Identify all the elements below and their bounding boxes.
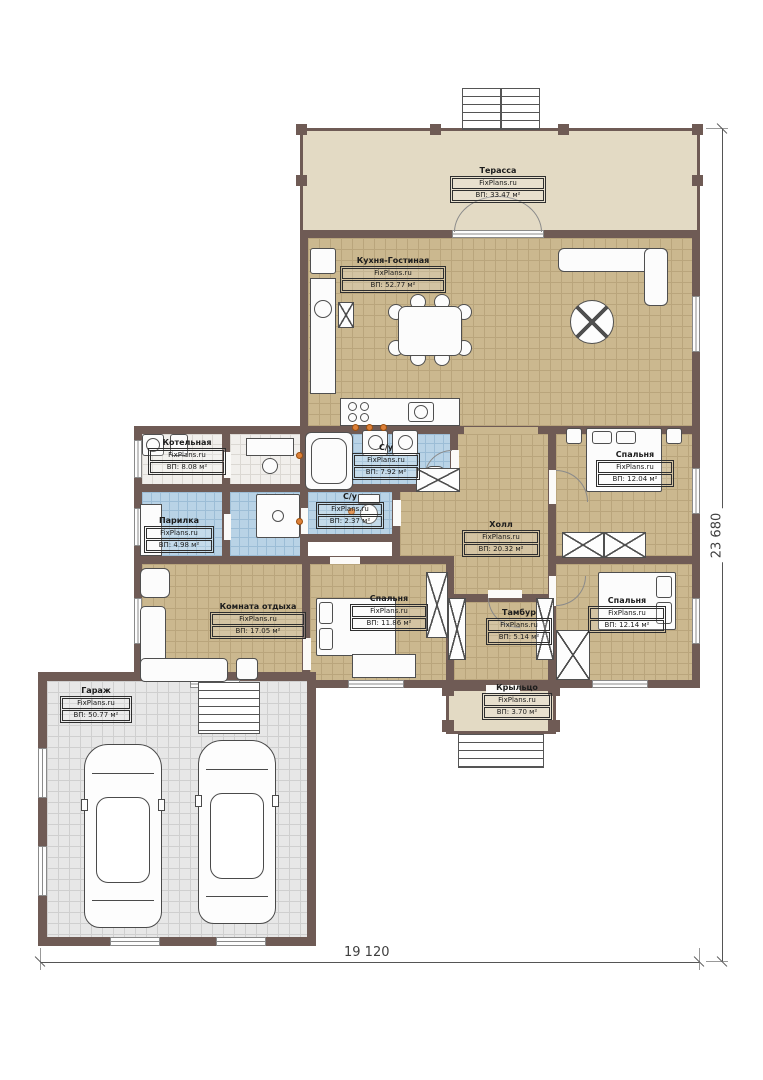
room-area: ВП: 7.92 м²	[354, 467, 418, 478]
room-name: С/у	[316, 492, 384, 502]
porch-pillar	[548, 720, 560, 732]
desk-icon	[246, 438, 294, 456]
terrace-pillar	[430, 124, 441, 135]
car-icon	[84, 744, 162, 928]
door-opening	[303, 638, 311, 670]
label-boiler: Котельная FixPlans.ru ВП: 8.08 м²	[148, 438, 226, 475]
car-roof	[96, 797, 150, 883]
shower-drain-icon	[272, 510, 284, 522]
room-name: Холл	[462, 520, 540, 530]
room-name: Спальня	[588, 596, 666, 606]
car-roof	[210, 793, 264, 879]
terrace-pillar	[692, 175, 703, 186]
terrace-pillar	[296, 124, 307, 135]
sofa-icon	[644, 248, 668, 306]
watermark: FixPlans.ru	[342, 268, 444, 279]
terrace-pillar	[558, 124, 569, 135]
dimension-ext	[40, 948, 41, 970]
dimension-ext	[699, 948, 700, 970]
garage-window	[38, 846, 47, 896]
wardrobe-icon	[604, 532, 646, 558]
room-area: ВП: 17.05 м²	[212, 626, 304, 637]
car-hood-line	[92, 773, 154, 774]
door-opening	[224, 514, 231, 540]
label-terrace: Терасса FixPlans.ru ВП: 33.47 м²	[450, 166, 546, 203]
room-name: Спальня	[596, 450, 674, 460]
dimension-height-label: 23 680	[709, 509, 724, 563]
room-area: ВП: 33.47 м²	[452, 190, 544, 201]
fixture-dot	[380, 424, 387, 431]
label-garage: Гараж FixPlans.ru ВП: 50.77 м²	[60, 686, 132, 723]
wardrobe-icon	[448, 598, 466, 660]
garage-window	[110, 937, 160, 946]
room-area: ВП: 52.77 м²	[342, 280, 444, 291]
car-trunk-line	[206, 896, 268, 897]
room-name: Тамбур	[486, 608, 552, 618]
round-table-icon	[570, 300, 614, 344]
stairs-rail	[500, 88, 502, 130]
room-area: ВП: 20.32 м²	[464, 544, 538, 555]
watermark: FixPlans.ru	[452, 178, 544, 189]
terrace-pillar	[692, 124, 703, 135]
room-name: С/у	[352, 443, 420, 453]
nightstand-icon	[566, 428, 582, 444]
room-area: ВП: 4.98 м²	[146, 540, 212, 551]
side-table-icon	[236, 658, 258, 680]
watermark: FixPlans.ru	[354, 455, 418, 466]
watermark: FixPlans.ru	[62, 698, 130, 709]
window	[134, 440, 142, 478]
porch-stairs-icon	[458, 734, 544, 768]
desk-chair-icon	[262, 458, 278, 474]
label-vestibule: Тамбур FixPlans.ru ВП: 5.14 м²	[486, 608, 552, 645]
fixture-dot	[352, 424, 359, 431]
room-area: ВП: 12.14 м²	[590, 620, 664, 631]
wardrobe-icon	[426, 572, 448, 638]
watermark: FixPlans.ru	[590, 608, 664, 619]
bathtub-inner	[311, 438, 347, 484]
kitchen-counter-icon	[310, 278, 336, 394]
room-name: Гараж	[60, 686, 132, 696]
label-lounge: Комната отдыха FixPlans.ru ВП: 17.05 м²	[210, 602, 306, 639]
room-area: ВП: 2.37 м²	[318, 516, 382, 527]
room-name: Терасса	[450, 166, 546, 176]
sofa-icon	[140, 658, 228, 682]
room-name: Парилка	[144, 516, 214, 526]
fixture-dot	[296, 452, 303, 459]
car-mirror	[81, 799, 88, 811]
room-name: Котельная	[148, 438, 226, 448]
room-area: ВП: 11.86 м²	[352, 618, 426, 629]
stove-burner-icon	[348, 413, 357, 422]
watermark: FixPlans.ru	[484, 695, 550, 706]
stove-burner-icon	[348, 402, 357, 411]
door-opening	[330, 557, 360, 564]
pillow-icon	[616, 431, 636, 444]
watermark: FixPlans.ru	[146, 528, 212, 539]
label-bathroom-2: С/у FixPlans.ru ВП: 2.37 м²	[316, 492, 384, 529]
desk-icon	[352, 654, 416, 678]
fixture-dot	[296, 518, 303, 525]
garage-window	[38, 748, 47, 798]
garage-stairs-icon	[198, 682, 260, 734]
window	[348, 680, 404, 688]
window	[692, 598, 700, 644]
car-trunk-line	[92, 900, 154, 901]
room-area: ВП: 50.77 м²	[62, 710, 130, 721]
stove-burner-icon	[360, 413, 369, 422]
window	[692, 296, 700, 352]
room-area: ВП: 5.14 м²	[488, 632, 550, 643]
nightstand-icon	[666, 428, 682, 444]
sink-icon	[314, 300, 332, 318]
chimney-flue-icon	[338, 302, 354, 328]
dimension-width-label: 19 120	[340, 945, 394, 960]
car-hood-line	[206, 769, 268, 770]
watermark: FixPlans.ru	[352, 606, 426, 617]
window	[692, 468, 700, 514]
watermark: FixPlans.ru	[150, 450, 224, 461]
armchair-icon	[140, 568, 170, 598]
watermark: FixPlans.ru	[464, 532, 538, 543]
dining-table-icon	[398, 306, 462, 356]
room-name: Спальня	[350, 594, 428, 604]
car-mirror	[272, 795, 279, 807]
dimension-ext	[706, 128, 728, 129]
floor-plan: Терасса FixPlans.ru ВП: 33.47 м² Кухня-Г…	[0, 0, 763, 1080]
door-opening	[393, 500, 401, 526]
stove-burner-icon	[360, 402, 369, 411]
garage-window	[216, 937, 266, 946]
door-opening	[464, 427, 538, 434]
watermark: FixPlans.ru	[598, 462, 672, 473]
porch-pillar	[442, 684, 454, 696]
car-mirror	[158, 799, 165, 811]
dimension-line-bottom	[40, 962, 700, 963]
car-mirror	[195, 795, 202, 807]
room-area: ВП: 12.04 м²	[598, 474, 672, 485]
watermark: FixPlans.ru	[212, 614, 304, 625]
room-name: Комната отдыха	[210, 602, 306, 612]
door-opening	[549, 470, 556, 504]
room-area: ВП: 8.08 м²	[150, 462, 224, 473]
kitchen-counter-icon	[340, 398, 460, 426]
watermark: FixPlans.ru	[318, 504, 382, 515]
room-name: Кухня-Гостиная	[340, 256, 446, 266]
fridge-icon	[310, 248, 336, 274]
porch-pillar	[442, 720, 454, 732]
pillow-icon	[656, 576, 672, 598]
kitchen-sink-bowl-icon	[414, 405, 428, 419]
label-bedroom-middle: Спальня FixPlans.ru ВП: 11.86 м²	[350, 594, 428, 631]
room-name: Крыльцо	[482, 683, 552, 693]
dimension-ext	[706, 961, 728, 962]
terrace-pillar	[296, 175, 307, 186]
label-bedroom-bottom-right: Спальня FixPlans.ru ВП: 12.14 м²	[588, 596, 666, 633]
label-hall: Холл FixPlans.ru ВП: 20.32 м²	[462, 520, 540, 557]
label-bedroom-top-right: Спальня FixPlans.ru ВП: 12.04 м²	[596, 450, 674, 487]
cabinet-icon	[416, 468, 460, 492]
label-porch: Крыльцо FixPlans.ru ВП: 3.70 м²	[482, 683, 552, 720]
fixture-dot	[366, 424, 373, 431]
label-kitchen-living: Кухня-Гостиная FixPlans.ru ВП: 52.77 м²	[340, 256, 446, 293]
pillow-icon	[592, 431, 612, 444]
car-icon	[198, 740, 276, 924]
door-opening	[488, 590, 522, 598]
room-area: ВП: 3.70 м²	[484, 707, 550, 718]
pillow-icon	[319, 602, 333, 624]
label-sauna: Парилка FixPlans.ru ВП: 4.98 м²	[144, 516, 214, 553]
wardrobe-icon	[556, 630, 590, 680]
pillow-icon	[319, 628, 333, 650]
wardrobe-icon	[562, 532, 604, 558]
window	[592, 680, 648, 688]
watermark: FixPlans.ru	[488, 620, 550, 631]
label-bathroom-1: С/у FixPlans.ru ВП: 7.92 м²	[352, 443, 420, 480]
